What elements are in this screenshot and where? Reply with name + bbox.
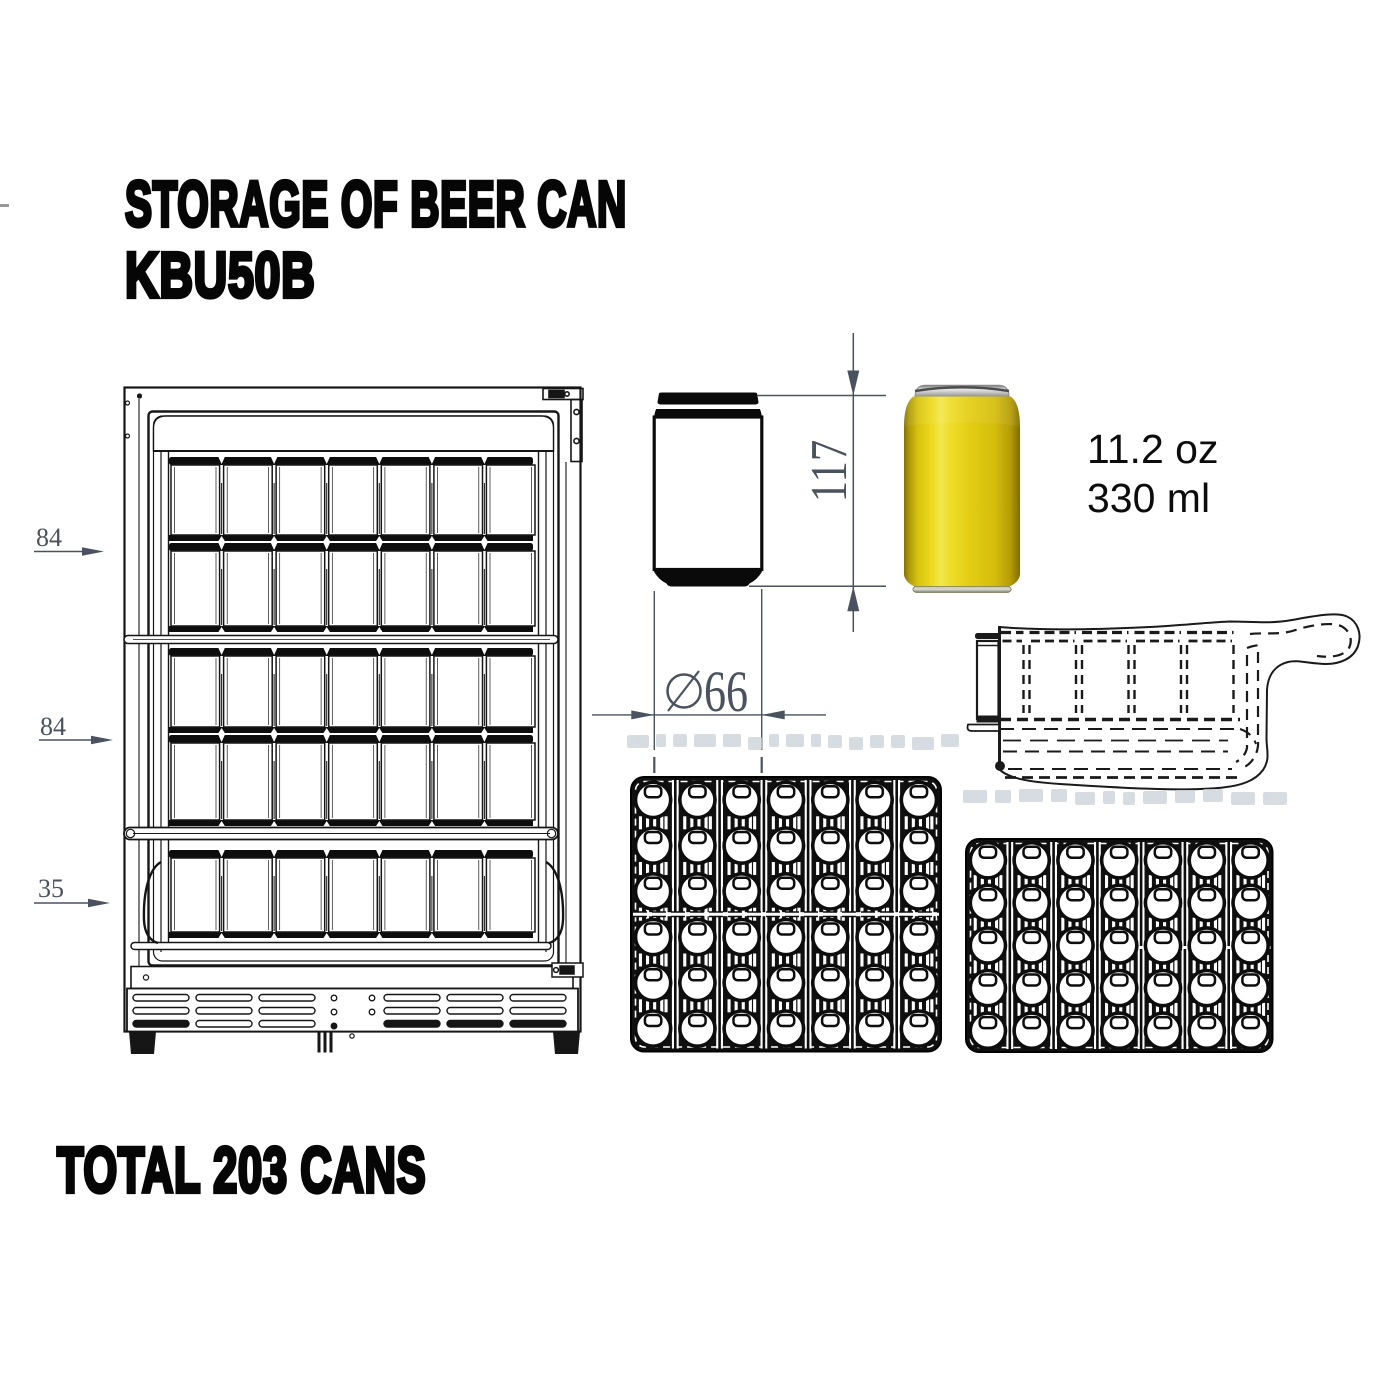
svg-text:66: 66 [704, 660, 748, 724]
svg-text:35: 35 [38, 874, 64, 903]
svg-text:11.2 oz: 11.2 oz [1087, 426, 1218, 472]
svg-text:330 ml: 330 ml [1087, 475, 1210, 521]
svg-text:117: 117 [801, 440, 858, 502]
svg-text:KBU50B: KBU50B [125, 239, 315, 311]
svg-text:84: 84 [40, 712, 66, 741]
svg-text:TOTAL 203 CANS: TOTAL 203 CANS [57, 1134, 426, 1207]
svg-text:84: 84 [36, 523, 62, 552]
svg-text:STORAGE OF BEER CAN: STORAGE OF BEER CAN [125, 170, 627, 241]
